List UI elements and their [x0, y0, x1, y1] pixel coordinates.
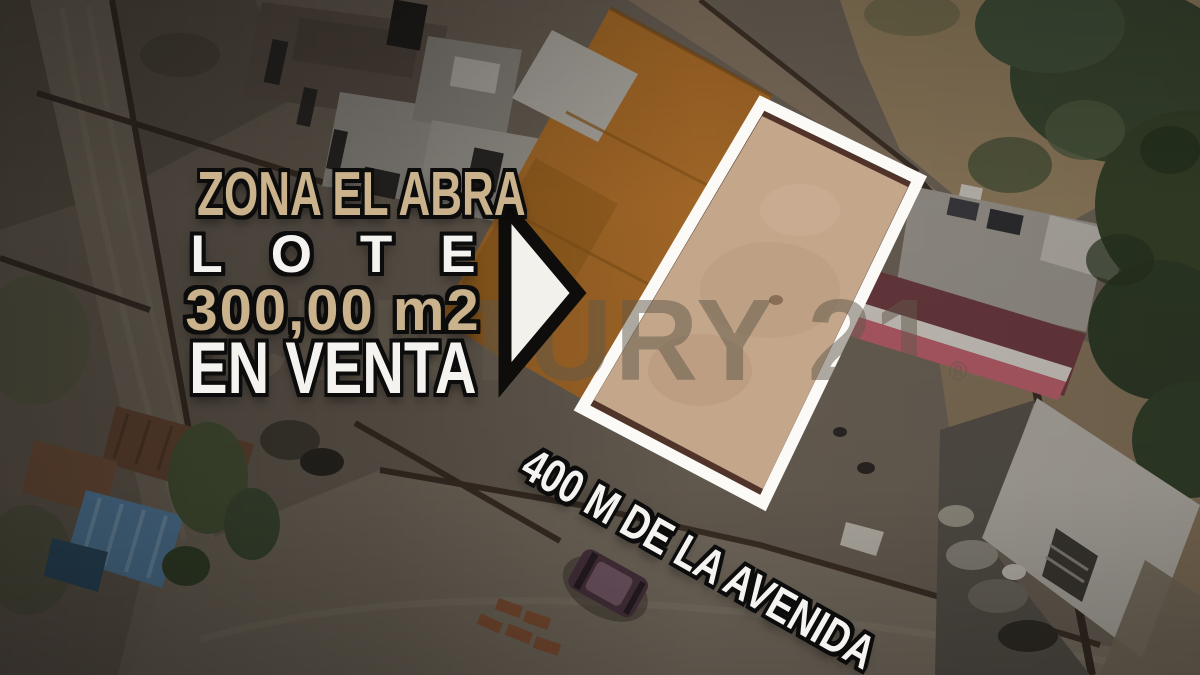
zone-label: ZONA EL ABRA: [130, 164, 536, 226]
status-label: EN VENTA: [130, 332, 536, 405]
lot-label: LOTE: [130, 228, 536, 281]
zone-label-text: ZONA EL ABRA: [197, 164, 526, 226]
status-label-text: EN VENTA: [189, 332, 476, 405]
video-frame: CENTURY 21® ZONA EL ABRA LOTE 300,00 m2 …: [0, 0, 1200, 675]
listing-text-block: ZONA EL ABRA LOTE 300,00 m2 EN VENTA: [130, 0, 536, 675]
registered-mark-icon: ®: [949, 356, 968, 386]
lot-label-text: LOTE: [190, 228, 523, 281]
